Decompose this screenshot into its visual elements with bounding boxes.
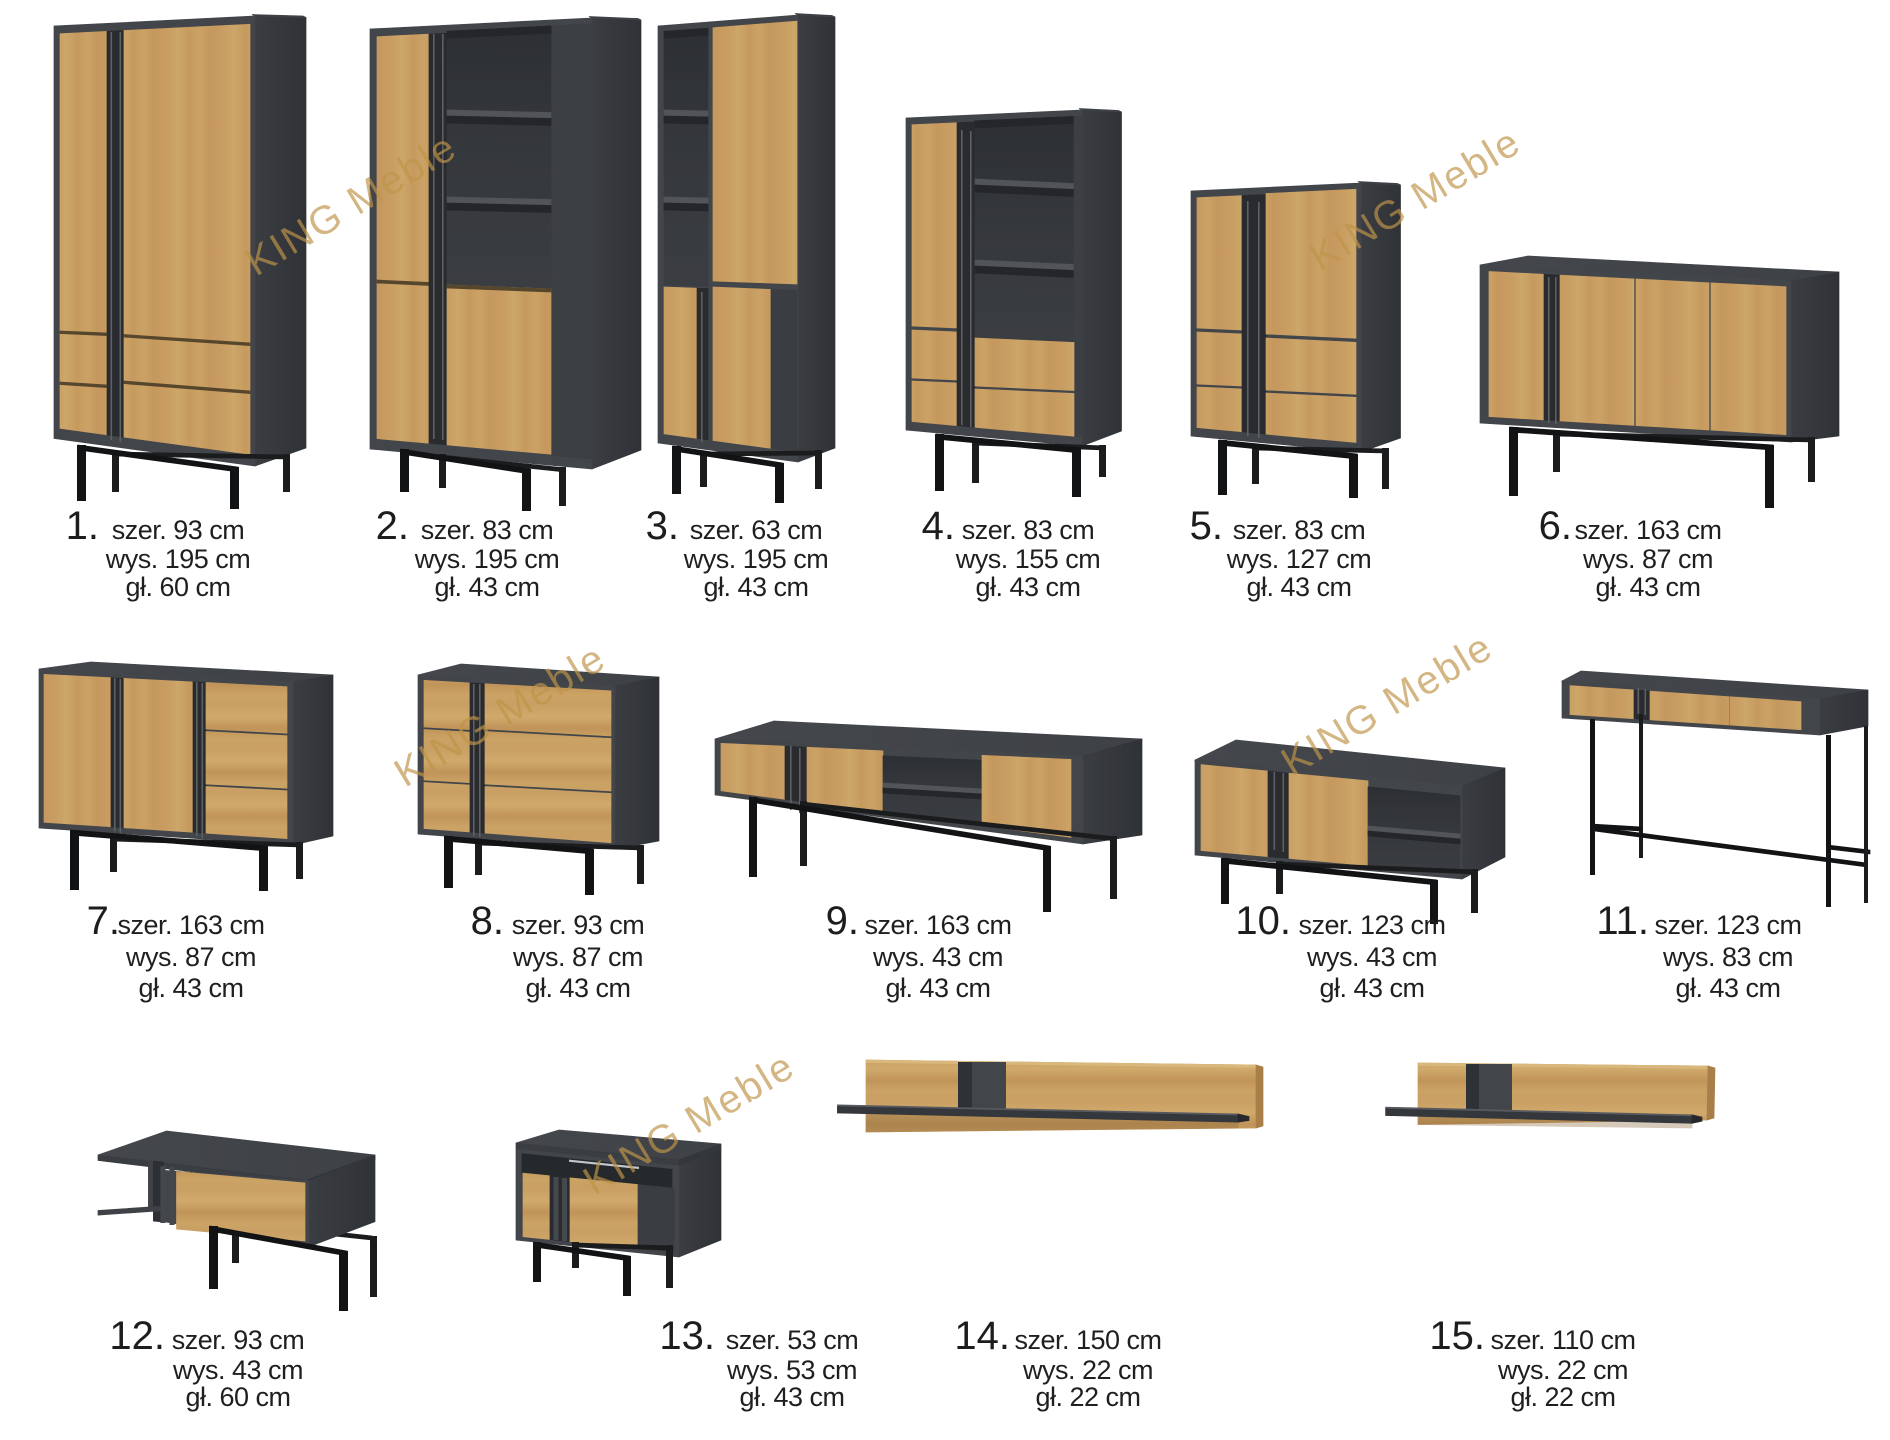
svg-text:10.: 10. [1235,899,1291,943]
svg-text:szer. 163 cm: szer. 163 cm [117,910,264,940]
svg-text:6.: 6. [1539,504,1572,548]
svg-text:12.: 12. [109,1314,165,1358]
svg-text:wys. 127 cm: wys. 127 cm [1226,544,1372,574]
svg-text:wys. 195 cm: wys. 195 cm [683,544,829,574]
svg-text:szer. 93 cm: szer. 93 cm [512,910,645,940]
svg-text:gł. 43 cm: gł. 43 cm [975,572,1080,602]
svg-text:gł. 43 cm: gł. 43 cm [703,572,808,602]
svg-text:2.: 2. [376,504,409,548]
svg-text:gł. 22 cm: gł. 22 cm [1510,1382,1615,1412]
svg-text:wys. 43 cm: wys. 43 cm [872,942,1003,972]
svg-text:gł. 43 cm: gł. 43 cm [138,973,243,1003]
svg-text:szer. 83 cm: szer. 83 cm [1233,515,1366,545]
svg-text:gł. 43 cm: gł. 43 cm [434,572,539,602]
svg-text:4.: 4. [922,504,955,548]
svg-text:szer. 63 cm: szer. 63 cm [690,515,823,545]
svg-text:wys. 87 cm: wys. 87 cm [512,942,643,972]
svg-text:wys. 195 cm: wys. 195 cm [414,544,560,574]
svg-text:9.: 9. [826,899,859,943]
svg-text:14.: 14. [954,1314,1010,1358]
svg-text:szer. 93 cm: szer. 93 cm [112,515,245,545]
svg-text:gł. 43 cm: gł. 43 cm [1675,973,1780,1003]
svg-text:wys. 53 cm: wys. 53 cm [726,1355,857,1385]
svg-text:wys. 87 cm: wys. 87 cm [1582,544,1713,574]
svg-text:szer. 163 cm: szer. 163 cm [864,910,1011,940]
svg-text:szer. 163 cm: szer. 163 cm [1574,515,1721,545]
svg-text:3.: 3. [646,504,679,548]
svg-text:gł. 43 cm: gł. 43 cm [525,973,630,1003]
svg-text:gł. 43 cm: gł. 43 cm [1246,572,1351,602]
svg-text:gł. 43 cm: gł. 43 cm [885,973,990,1003]
svg-text:5.: 5. [1190,504,1223,548]
svg-text:gł. 43 cm: gł. 43 cm [1319,973,1424,1003]
svg-text:gł. 22 cm: gł. 22 cm [1035,1382,1140,1412]
svg-text:wys. 155 cm: wys. 155 cm [955,544,1101,574]
svg-text:8.: 8. [471,899,504,943]
svg-text:wys. 43 cm: wys. 43 cm [172,1355,303,1385]
svg-text:gł. 43 cm: gł. 43 cm [1595,572,1700,602]
svg-text:wys. 87 cm: wys. 87 cm [125,942,256,972]
svg-text:gł. 60 cm: gł. 60 cm [125,572,230,602]
svg-text:wys. 22 cm: wys. 22 cm [1497,1355,1628,1385]
svg-text:wys. 22 cm: wys. 22 cm [1022,1355,1153,1385]
svg-text:szer. 110 cm: szer. 110 cm [1490,1325,1635,1355]
svg-text:szer. 83 cm: szer. 83 cm [962,515,1095,545]
svg-text:wys. 83 cm: wys. 83 cm [1662,942,1793,972]
svg-text:gł. 60 cm: gł. 60 cm [185,1382,290,1412]
svg-text:szer. 123 cm: szer. 123 cm [1298,910,1445,940]
svg-text:wys. 195 cm: wys. 195 cm [105,544,251,574]
svg-text:szer. 123 cm: szer. 123 cm [1654,910,1801,940]
svg-text:szer. 93 cm: szer. 93 cm [172,1325,305,1355]
svg-text:15.: 15. [1429,1314,1485,1358]
svg-text:11.: 11. [1596,899,1649,943]
svg-text:szer. 53 cm: szer. 53 cm [726,1325,859,1355]
svg-text:szer. 83 cm: szer. 83 cm [421,515,554,545]
svg-text:13.: 13. [659,1314,715,1358]
svg-text:7.: 7. [87,899,120,943]
svg-text:szer. 150 cm: szer. 150 cm [1014,1325,1161,1355]
svg-text:1.: 1. [66,504,99,548]
svg-text:wys. 43 cm: wys. 43 cm [1306,942,1437,972]
svg-text:gł. 43 cm: gł. 43 cm [739,1382,844,1412]
